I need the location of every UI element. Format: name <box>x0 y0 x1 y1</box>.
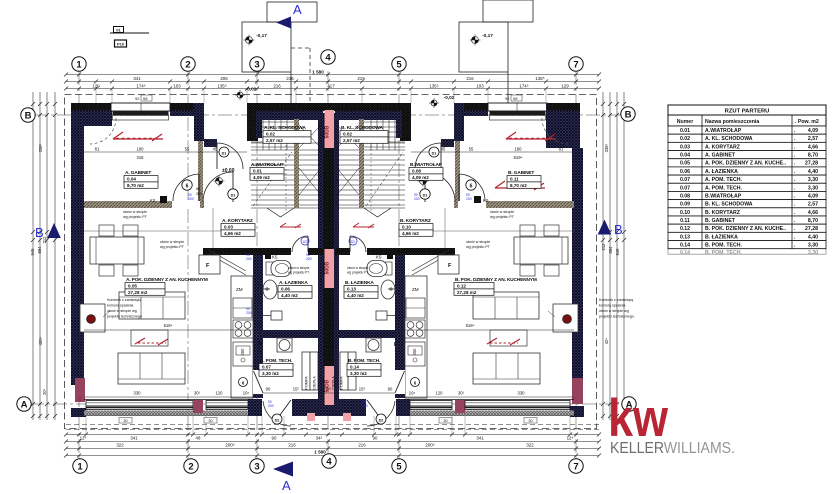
svg-text:0.04: 0.04 <box>127 177 136 182</box>
svg-text:. Pow. m2: . Pow. m2 <box>795 119 819 125</box>
svg-text:A. GABINET: A. GABINET <box>125 170 151 176</box>
svg-text:200: 200 <box>246 257 252 261</box>
svg-text:200: 200 <box>196 192 202 196</box>
svg-text:884: 884 <box>608 246 613 254</box>
svg-text:CIEPŁA: CIEPŁA <box>332 376 336 390</box>
svg-text:50DB: 50DB <box>325 125 331 138</box>
svg-text:0.14: 0.14 <box>680 250 690 256</box>
svg-text:Nazwa pomieszczenia: Nazwa pomieszczenia <box>705 119 759 125</box>
svg-text:10⁴: 10⁴ <box>243 391 250 396</box>
svg-text:518⁴: 518⁴ <box>466 323 475 328</box>
svg-text:B. GABINET: B. GABINET <box>508 170 534 176</box>
svg-text:komorą spalania: komorą spalania <box>107 304 133 308</box>
svg-text:135⁵: 135⁵ <box>217 84 226 89</box>
svg-text:3,30: 3,30 <box>808 243 818 249</box>
svg-text:2,57 m2: 2,57 m2 <box>266 138 283 143</box>
svg-text:55: 55 <box>469 147 474 152</box>
svg-text:4: 4 <box>326 456 332 467</box>
svg-text:8,70 m2: 8,70 m2 <box>510 183 527 188</box>
svg-text:B. ŁAZIENKA: B. ŁAZIENKA <box>705 234 738 240</box>
svg-text:A. POK. DZIENNY Z AN. KUCHENN: A. POK. DZIENNY Z AN. KUCHENNYM <box>126 277 208 283</box>
svg-text:48: 48 <box>196 436 201 441</box>
svg-text:A: A <box>282 478 291 493</box>
svg-text:30: 30 <box>208 419 212 423</box>
svg-text:0.07: 0.07 <box>262 365 271 370</box>
svg-text:216: 216 <box>466 76 474 81</box>
svg-text:200: 200 <box>414 197 420 201</box>
svg-text:12⁴: 12⁴ <box>80 436 87 441</box>
svg-text:A. KL. SCHODOWA: A. KL. SCHODOWA <box>264 125 306 131</box>
svg-text:D1: D1 <box>432 152 437 156</box>
svg-text:0.02: 0.02 <box>343 132 352 137</box>
svg-text:KS: KS <box>376 255 382 260</box>
svg-text:otwór w stropie: otwór w stropie <box>347 266 369 270</box>
svg-text:30¹: 30¹ <box>194 391 201 396</box>
svg-text:B. POM. TECH.: B. POM. TECH. <box>705 243 742 249</box>
svg-text:15⁵: 15⁵ <box>359 387 366 392</box>
svg-text:518⁴: 518⁴ <box>164 323 173 328</box>
svg-text:120: 120 <box>216 391 224 396</box>
svg-text:-0,17: -0,17 <box>482 33 493 39</box>
svg-text:A. POM. TECH.: A. POM. TECH. <box>260 358 292 364</box>
svg-text:0.13: 0.13 <box>347 287 356 292</box>
svg-text:20¹: 20¹ <box>42 388 47 395</box>
svg-text:519⁴: 519⁴ <box>514 155 523 160</box>
svg-text:316: 316 <box>137 155 145 160</box>
svg-text:174⁵: 174⁵ <box>519 84 528 89</box>
svg-text:200: 200 <box>188 197 194 201</box>
svg-text:8,70 m2: 8,70 m2 <box>127 183 144 188</box>
svg-text:RZUT PARTERU: RZUT PARTERU <box>725 108 770 114</box>
svg-text:-0,02: -0,02 <box>444 95 455 100</box>
svg-text:D1: D1 <box>222 152 227 156</box>
svg-text:5: 5 <box>396 461 402 472</box>
svg-text:CIEPŁA: CIEPŁA <box>313 376 317 390</box>
svg-text:B.WIATROŁAP: B.WIATROŁAP <box>705 193 742 199</box>
svg-text:0.11: 0.11 <box>680 218 690 224</box>
svg-text:B. POK. DZIENNY Z AN. KUCHENN: B. POK. DZIENNY Z AN. KUCHENNYM <box>455 277 537 283</box>
svg-text:200⁵: 200⁵ <box>425 443 434 448</box>
svg-text:D1: D1 <box>231 194 236 198</box>
svg-text:135⁵: 135⁵ <box>429 84 438 89</box>
svg-text:27,28: 27,28 <box>805 226 818 232</box>
svg-text:KELLERWILLIAMS.: KELLERWILLIAMS. <box>610 440 735 457</box>
svg-text:A. KL. SCHODOWA: A. KL. SCHODOWA <box>705 136 753 142</box>
svg-text:P: P <box>394 342 398 348</box>
svg-text:D2: D2 <box>303 240 307 244</box>
svg-text:338⁵: 338⁵ <box>38 143 43 152</box>
svg-text:15⁵: 15⁵ <box>293 387 300 392</box>
svg-text:A: A <box>293 2 302 17</box>
svg-text:200: 200 <box>268 404 274 408</box>
svg-text:3: 3 <box>254 59 259 70</box>
svg-text:90: 90 <box>272 436 277 441</box>
svg-text:4,66 m2: 4,66 m2 <box>224 231 241 236</box>
svg-text:30: 30 <box>123 419 127 423</box>
svg-text:0.01: 0.01 <box>253 169 262 174</box>
svg-text:200: 200 <box>246 311 252 315</box>
svg-text:3,30: 3,30 <box>808 177 818 183</box>
svg-text:wg projektu PT: wg projektu PT <box>123 215 148 219</box>
svg-text:otwór w stropie: otwór w stropie <box>288 266 310 270</box>
svg-text:200⁵: 200⁵ <box>225 443 234 448</box>
svg-text:POMPA: POMPA <box>340 376 344 390</box>
svg-text:90: 90 <box>388 387 393 392</box>
svg-text:6: 6 <box>186 184 189 190</box>
svg-text:ZM: ZM <box>412 287 419 292</box>
svg-text:219: 219 <box>357 76 365 81</box>
svg-text:8,70: 8,70 <box>808 218 818 224</box>
svg-text:0.10: 0.10 <box>680 210 690 216</box>
svg-text:4,09 m2: 4,09 m2 <box>412 175 429 180</box>
svg-text:322: 322 <box>116 443 124 448</box>
svg-text:30: 30 <box>443 419 447 423</box>
svg-text:216: 216 <box>358 443 366 448</box>
svg-text:0.02: 0.02 <box>680 136 690 142</box>
svg-text:27,28 m2: 27,28 m2 <box>128 290 148 295</box>
svg-text:341: 341 <box>130 436 138 441</box>
svg-text:08: 08 <box>513 96 518 101</box>
svg-text:417: 417 <box>327 84 335 89</box>
svg-text:projektu technicznego: projektu technicznego <box>599 315 634 319</box>
svg-text:7: 7 <box>573 461 578 472</box>
svg-text:0.08: 0.08 <box>680 193 690 199</box>
svg-text:A. POK. DZIENNY Z AN. KUCHE..: A. POK. DZIENNY Z AN. KUCHE.. <box>705 161 787 167</box>
svg-text:A.WIATROŁAP: A.WIATROŁAP <box>705 128 742 134</box>
svg-text:D2: D2 <box>351 240 355 244</box>
svg-text:Kominek z zamkniętą: Kominek z zamkniętą <box>107 298 141 302</box>
svg-text:330: 330 <box>518 391 526 396</box>
svg-text:KS: KS <box>483 198 489 203</box>
svg-text:0.06: 0.06 <box>281 287 290 292</box>
svg-text:450: 450 <box>412 348 417 356</box>
svg-text:206: 206 <box>220 76 228 81</box>
svg-text:0.07: 0.07 <box>680 185 690 191</box>
svg-text:1: 1 <box>76 59 82 70</box>
svg-text:2: 2 <box>185 59 190 70</box>
svg-text:0.12: 0.12 <box>457 284 466 289</box>
svg-text:0.05: 0.05 <box>128 284 137 289</box>
svg-text:341: 341 <box>133 76 141 81</box>
svg-text:4,66: 4,66 <box>808 144 818 150</box>
svg-text:otwór w stropie wg: otwór w stropie wg <box>107 309 137 313</box>
svg-text:450: 450 <box>240 348 245 356</box>
svg-text:10⁴: 10⁴ <box>409 391 416 396</box>
svg-text:0.02: 0.02 <box>266 132 275 137</box>
svg-text:ZM: ZM <box>236 287 243 292</box>
svg-text:30: 30 <box>528 419 532 423</box>
svg-text:projektu technicznego: projektu technicznego <box>107 315 142 319</box>
svg-text:406⁴: 406⁴ <box>38 336 43 345</box>
svg-text:180: 180 <box>515 147 523 152</box>
svg-text:330: 330 <box>134 391 142 396</box>
svg-text:3,30 m2: 3,30 m2 <box>350 371 367 376</box>
svg-text:KS: KS <box>150 198 156 203</box>
svg-text:4,09 m2: 4,09 m2 <box>253 175 270 180</box>
svg-text:81: 81 <box>559 147 564 152</box>
svg-text:B. GABINET: B. GABINET <box>705 218 736 224</box>
svg-text:wg projektu PT: wg projektu PT <box>490 215 515 219</box>
svg-text:0.01: 0.01 <box>680 128 690 134</box>
svg-text:B. POM. TECH.: B. POM. TECH. <box>348 358 380 364</box>
svg-text:otwór w stropie: otwór w stropie <box>490 210 514 214</box>
svg-text:4,40 m2: 4,40 m2 <box>281 293 298 298</box>
svg-text:B: B <box>25 110 32 121</box>
svg-text:92: 92 <box>135 96 140 101</box>
svg-text:4,09: 4,09 <box>808 128 818 134</box>
svg-text:949: 949 <box>615 248 620 256</box>
svg-text:45: 45 <box>441 147 446 152</box>
svg-text:3,30: 3,30 <box>808 250 818 256</box>
svg-text:92: 92 <box>505 96 510 101</box>
svg-text:4,40 m2: 4,40 m2 <box>347 293 364 298</box>
svg-text:200: 200 <box>306 257 312 261</box>
svg-text:B: B <box>625 109 632 120</box>
svg-text:komorą spalania: komorą spalania <box>599 304 625 308</box>
svg-text:0.03: 0.03 <box>224 225 233 230</box>
svg-text:27,28: 27,28 <box>805 161 818 167</box>
svg-text:Kominek z zamkniętą: Kominek z zamkniętą <box>599 298 633 302</box>
svg-text:A. ŁAZIENKA: A. ŁAZIENKA <box>279 280 308 286</box>
svg-text:-0,17: -0,17 <box>256 33 267 39</box>
svg-text:08: 08 <box>143 96 148 101</box>
svg-text:B. KL. SCHODOWA: B. KL. SCHODOWA <box>341 125 383 131</box>
svg-text:2,57: 2,57 <box>808 136 818 142</box>
svg-text:L9: L9 <box>77 396 82 401</box>
svg-text:B. POK. DZIENNY Z AN. KUCHE..: B. POK. DZIENNY Z AN. KUCHE.. <box>705 226 787 232</box>
svg-text:0.06: 0.06 <box>680 169 690 175</box>
svg-text:A. KORYTARZ: A. KORYTARZ <box>222 218 253 224</box>
svg-text:949: 949 <box>30 248 35 256</box>
svg-text:129: 129 <box>561 84 569 89</box>
svg-text:B: B <box>614 222 623 237</box>
svg-text:P10: P10 <box>117 42 125 47</box>
svg-text:0.03: 0.03 <box>680 144 690 150</box>
svg-text:103: 103 <box>476 84 484 89</box>
svg-text:B. POM. TECH.: B. POM. TECH. <box>705 250 742 256</box>
svg-text:55: 55 <box>185 147 190 152</box>
svg-text:2: 2 <box>188 461 193 472</box>
svg-text:174⁵: 174⁵ <box>136 84 145 89</box>
svg-text:0.13: 0.13 <box>680 234 690 240</box>
svg-text:8¹¹: 8¹¹ <box>326 387 332 392</box>
svg-text:3: 3 <box>254 461 259 472</box>
svg-text:0.14: 0.14 <box>350 365 359 370</box>
svg-text:B: B <box>35 225 44 240</box>
svg-text:A. ŁAZIENKA: A. ŁAZIENKA <box>705 169 738 175</box>
svg-text:4,40: 4,40 <box>808 169 818 175</box>
svg-text:0.14: 0.14 <box>680 243 690 249</box>
svg-text:A. POM. TECH.: A. POM. TECH. <box>705 185 742 191</box>
svg-text:0.10: 0.10 <box>402 225 411 230</box>
svg-text:1 580: 1 580 <box>314 450 326 455</box>
svg-text:12⁴: 12⁴ <box>567 436 574 441</box>
svg-text:4: 4 <box>325 52 331 63</box>
svg-text:D2: D2 <box>275 419 280 423</box>
svg-text:200: 200 <box>362 404 368 408</box>
svg-text:B. KL. SCHODOWA: B. KL. SCHODOWA <box>705 202 753 208</box>
svg-text:30¹: 30¹ <box>458 391 465 396</box>
svg-text:129: 129 <box>92 84 100 89</box>
svg-text:8,70: 8,70 <box>808 153 818 159</box>
svg-text:0.04: 0.04 <box>680 153 690 159</box>
svg-text:wg projektu PT: wg projektu PT <box>160 245 185 249</box>
svg-text:otwór w stropie: otwór w stropie <box>160 240 184 244</box>
svg-text:otwór w stropie wg: otwór w stropie wg <box>599 309 629 313</box>
svg-text:3,30: 3,30 <box>808 185 818 191</box>
svg-text:322: 322 <box>526 443 534 448</box>
svg-text:81: 81 <box>95 147 100 152</box>
svg-text:D2: D2 <box>379 419 384 423</box>
svg-text:wg projektu PT: wg projektu PT <box>288 271 309 275</box>
svg-text:216: 216 <box>286 76 294 81</box>
svg-text:200: 200 <box>466 197 472 201</box>
svg-text:216: 216 <box>273 84 281 89</box>
svg-text:D1: D1 <box>423 194 428 198</box>
svg-text:4,09: 4,09 <box>808 193 818 199</box>
svg-text:135⁵: 135⁵ <box>535 76 544 81</box>
svg-text:120: 120 <box>436 391 444 396</box>
svg-text:-0,02: -0,02 <box>246 87 257 92</box>
svg-text:212: 212 <box>601 243 606 251</box>
svg-text:884: 884 <box>37 246 42 254</box>
svg-text:0.09: 0.09 <box>680 202 690 208</box>
svg-text:B.WIATROŁAP: B.WIATROŁAP <box>410 162 443 168</box>
svg-text:7: 7 <box>573 59 578 70</box>
svg-text:A. POM. TECH.: A. POM. TECH. <box>705 177 742 183</box>
svg-text:1: 1 <box>77 461 83 472</box>
svg-text:A: A <box>21 399 28 410</box>
svg-text:34⁵: 34⁵ <box>316 436 323 441</box>
svg-text:otwór w stropie: otwór w stropie <box>123 210 147 214</box>
svg-text:A.WIATROŁAP: A.WIATROŁAP <box>251 162 284 168</box>
svg-text:Numer: Numer <box>677 119 693 125</box>
svg-text:80: 80 <box>196 187 200 191</box>
svg-text:2,57 m2: 2,57 m2 <box>343 138 360 143</box>
svg-text:B. KORYTARZ: B. KORYTARZ <box>400 218 431 224</box>
svg-text:90: 90 <box>373 436 378 441</box>
svg-text:0.12: 0.12 <box>680 226 690 232</box>
svg-text:wg projektu PT: wg projektu PT <box>347 271 368 275</box>
svg-text:27,28 m2: 27,28 m2 <box>457 290 477 295</box>
svg-text:01: 01 <box>116 28 121 33</box>
svg-text:4,66 m2: 4,66 m2 <box>402 231 419 236</box>
svg-text:4,40: 4,40 <box>808 234 818 240</box>
svg-text:B. KORYTARZ: B. KORYTARZ <box>705 210 741 216</box>
svg-text:216: 216 <box>288 443 296 448</box>
svg-text:0.08: 0.08 <box>412 169 421 174</box>
svg-text:0.05: 0.05 <box>680 161 690 167</box>
svg-text:1 580: 1 580 <box>312 70 324 75</box>
svg-text:KS: KS <box>272 255 278 260</box>
svg-text:±0,00: ±0,00 <box>222 168 235 174</box>
svg-text:0.11: 0.11 <box>510 177 519 182</box>
svg-text:3,30 m2: 3,30 m2 <box>262 371 279 376</box>
svg-text:90: 90 <box>266 387 271 392</box>
svg-text:338⁵: 338⁵ <box>604 143 609 152</box>
svg-text:2,57: 2,57 <box>808 202 818 208</box>
svg-text:A. GABINET: A. GABINET <box>705 153 736 159</box>
svg-text:40⁴: 40⁴ <box>604 338 609 345</box>
svg-text:4,66: 4,66 <box>808 210 818 216</box>
svg-text:103: 103 <box>173 84 181 89</box>
svg-text:50DB: 50DB <box>325 261 331 274</box>
svg-text:180: 180 <box>137 147 145 152</box>
svg-text:341: 341 <box>476 436 484 441</box>
svg-text:P: P <box>258 342 262 348</box>
svg-text:6: 6 <box>470 184 473 190</box>
svg-text:0.07: 0.07 <box>680 177 690 183</box>
svg-text:wg projektu PT: wg projektu PT <box>466 245 491 249</box>
svg-text:A. KORYTARZ: A. KORYTARZ <box>705 144 741 150</box>
svg-text:5: 5 <box>396 59 402 70</box>
svg-text:otwór w stropie: otwór w stropie <box>466 240 490 244</box>
svg-text:B. ŁAZIENKA: B. ŁAZIENKA <box>345 280 374 286</box>
svg-text:POMPA: POMPA <box>305 376 309 390</box>
